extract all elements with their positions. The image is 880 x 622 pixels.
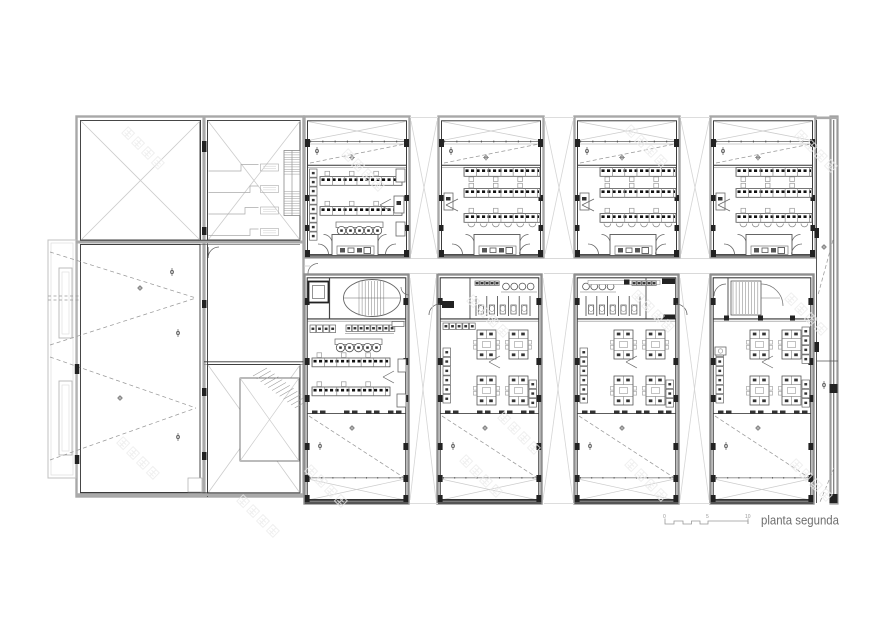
svg-text:10: 10 [745, 514, 751, 520]
svg-text:5: 5 [706, 514, 709, 520]
svg-text:0: 0 [663, 514, 666, 520]
svg-text:planta segunda: planta segunda [761, 513, 840, 528]
